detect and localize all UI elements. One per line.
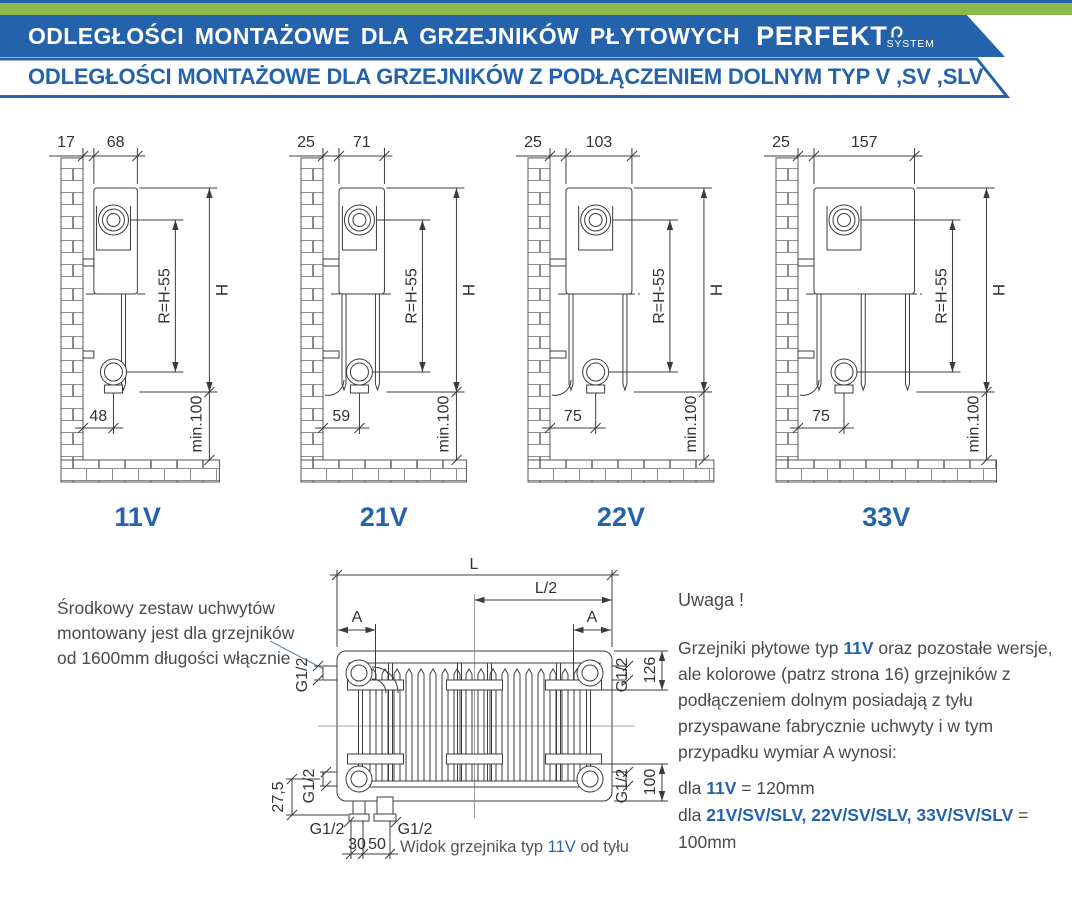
diagram-type-label: 21V — [360, 502, 408, 532]
sub-banner: ODLEGŁOŚCI MONTAŻOWE DLA GRZEJNIKÓW Z PO… — [0, 57, 1015, 98]
type-highlight: 11V — [706, 778, 736, 798]
dim-pipe-offset: 48 — [89, 408, 107, 425]
brand-name: PERFEKT — [756, 23, 888, 49]
thread-pipe-right: G1/2 — [398, 821, 433, 838]
dim-floor-clearance: min.100 — [683, 395, 700, 452]
text-segment: = 120mm — [736, 778, 814, 798]
dim-pipe-offset: 59 — [332, 408, 350, 425]
dim-inner: R=H-55 — [651, 268, 668, 324]
dim-wall-gap: 25 — [297, 134, 315, 151]
diagram-type-label: 22V — [597, 502, 645, 532]
note-title: Uwaga ! — [678, 590, 1070, 611]
note-line-1: dla 11V = 120mm — [678, 775, 1070, 802]
dim-100: 100 — [642, 769, 659, 796]
thread-bottom-right: G1/2 — [614, 769, 631, 804]
dim-floor-clearance: min.100 — [965, 395, 982, 452]
brand-subname: SYSTEM — [887, 39, 935, 49]
rear-caption: Widok grzejnika typ 11V od tyłu — [400, 838, 629, 856]
dim-wall-gap: 17 — [57, 134, 75, 151]
text-segment: dla — [678, 805, 706, 825]
diagram-11V: 1768R=H-55Hmin.1004811V — [47, 132, 307, 532]
dim-inner: R=H-55 — [403, 268, 420, 324]
type-highlight: 11V — [843, 638, 873, 658]
sub-banner-title: ODLEGŁOŚCI MONTAŻOWE DLA GRZEJNIKÓW Z PO… — [28, 64, 983, 90]
note-right: Uwaga ! Grzejniki płytowe typ 11V oraz p… — [678, 590, 1070, 856]
brand-logo: PERFEKT SYSTEM — [756, 23, 935, 49]
dim-A-left: A — [352, 609, 363, 626]
dim-height: H — [212, 284, 231, 296]
text-segment: dla — [678, 778, 706, 798]
diagram-type-label: 33V — [862, 502, 910, 532]
type-highlight: 21V/SV/SLV, 22V/SV/SLV, 33V/SV/SLV — [706, 805, 1013, 825]
top-green-strip — [0, 3, 1072, 15]
dim-depth: 68 — [107, 134, 125, 151]
dim-floor-clearance: min.100 — [188, 395, 205, 452]
dim-30: 30 — [348, 836, 366, 853]
mounting-diagrams-row: 1768R=H-55Hmin.1004811V2571R=H-55Hmin.10… — [0, 132, 1072, 537]
dim-wall-gap: 25 — [524, 134, 542, 151]
diagram-33V: 25157R=H-55Hmin.1007533V — [762, 132, 1022, 532]
dim-depth: 71 — [353, 134, 371, 151]
dim-pipe-offset: 75 — [564, 408, 582, 425]
dim-126: 126 — [642, 657, 659, 684]
diagram-21V: 2571R=H-55Hmin.1005921V — [287, 132, 547, 532]
dim-wall-gap: 25 — [772, 134, 790, 151]
dim-height: H — [989, 284, 1008, 296]
dim-floor-clearance: min.100 — [435, 395, 452, 452]
banner-title: ODLEGŁOŚCI MONTAŻOWE DLA GRZEJNIKÓW PŁYT… — [28, 23, 740, 50]
dim-inner: R=H-55 — [933, 268, 950, 324]
text-segment: Grzejniki płytowe typ — [678, 638, 843, 658]
rear-view-section: Środkowy zestaw uchwytów montowany jest … — [0, 556, 1072, 891]
dim-depth: 157 — [851, 134, 878, 151]
dim-depth: 103 — [586, 134, 613, 151]
dim-A-right: A — [587, 609, 598, 626]
diagram-22V: 25103R=H-55Hmin.1007522V — [514, 132, 774, 532]
dim-L: L — [470, 556, 479, 573]
thread-bottom-left: G1/2 — [301, 769, 318, 804]
diagram-type-label: 11V — [114, 502, 161, 532]
brand-hook-icon — [889, 24, 905, 39]
dim-height: H — [707, 284, 726, 296]
dim-27-5: 27,5 — [270, 781, 287, 812]
dim-pipe-offset: 75 — [812, 408, 830, 425]
dim-L2: L/2 — [535, 580, 557, 597]
thread-top-left: G1/2 — [294, 658, 311, 693]
note-line-2: dla 21V/SV/SLV, 22V/SV/SLV, 33V/SV/SLV =… — [678, 802, 1070, 856]
rear-view-drawing: LL/2AAG1/2G1/2G1/2G1/212610027,5G1/2G1/2… — [270, 556, 670, 886]
main-banner: ODLEGŁOŚCI MONTAŻOWE DLA GRZEJNIKÓW PŁYT… — [0, 15, 1005, 57]
page: ODLEGŁOŚCI MONTAŻOWE DLA GRZEJNIKÓW PŁYT… — [0, 0, 1072, 898]
dim-height: H — [459, 284, 478, 296]
dim-inner: R=H-55 — [156, 268, 173, 324]
thread-top-right: G1/2 — [614, 658, 631, 693]
brand-tail: SYSTEM — [887, 24, 935, 49]
dim-50: 50 — [368, 836, 386, 853]
thread-pipe-left: G1/2 — [310, 821, 345, 838]
note-body: Grzejniki płytowe typ 11V oraz pozostałe… — [678, 635, 1070, 765]
